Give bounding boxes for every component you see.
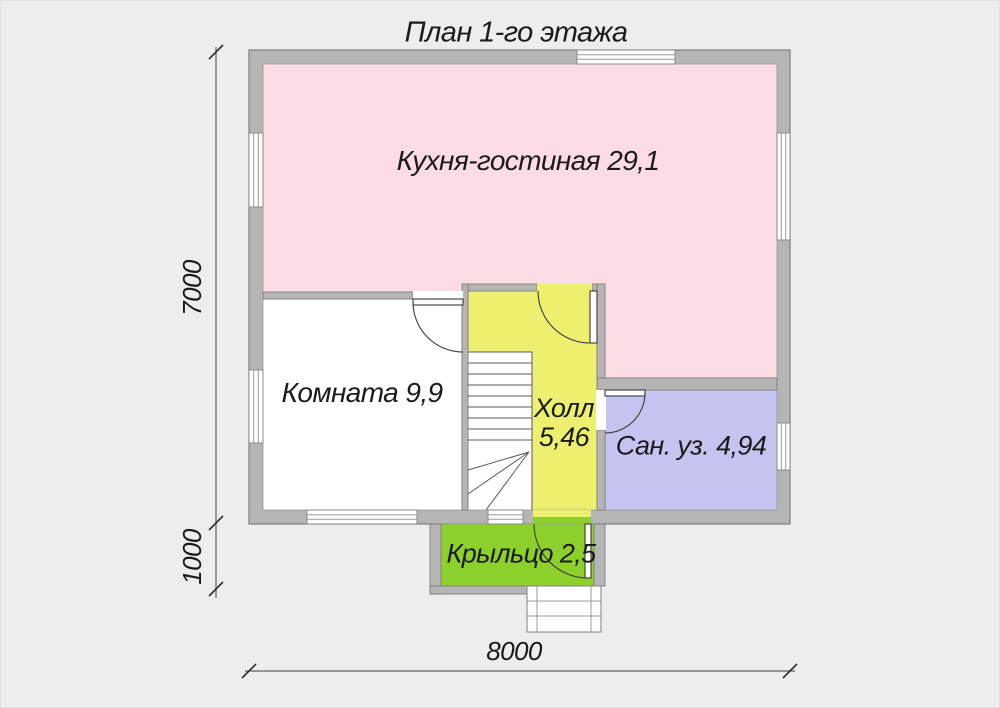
room-area-bathroom: 4,94 <box>716 430 766 460</box>
dimension-label-porch-depth: 1000 <box>178 529 206 584</box>
room-area-kitchen: 29,1 <box>607 145 659 176</box>
room-area-porch: 2,5 <box>560 538 596 568</box>
room-name-hall: Холл <box>534 394 594 423</box>
doorway-kitchen-hall <box>537 283 592 292</box>
room-area-bedroom: 9,9 <box>405 377 442 408</box>
window-right-kitchen <box>777 133 790 240</box>
room-label-hall: Холл 5,46 <box>534 394 594 452</box>
floor-plan-canvas: План 1-го этажа Кухня-гостиная 29,1 Комн… <box>0 0 1000 708</box>
wall-hall-kitchen-vertical <box>597 284 605 378</box>
room-label-bedroom: Комната 9,9 <box>282 378 443 408</box>
porch-wall-left <box>430 524 441 594</box>
door-leaf-room <box>413 299 463 305</box>
window-right-bathroom <box>777 423 790 470</box>
window-left-kitchen <box>249 133 263 207</box>
window-bottom-room <box>307 510 417 524</box>
floor-plan-drawing <box>0 0 1000 708</box>
staircase-area <box>468 352 532 510</box>
doorway-entry-upper <box>533 510 591 518</box>
entrance-steps <box>527 586 601 632</box>
room-name-bedroom: Комната <box>282 377 399 408</box>
wall-kitchen-bathroom <box>597 378 777 390</box>
room-label-porch: Крыльцо 2,5 <box>446 539 595 568</box>
dimension-label-width: 8000 <box>486 637 541 665</box>
wall-room-stairs <box>462 284 468 510</box>
room-name-kitchen: Кухня-гостиная <box>397 145 600 176</box>
plan-title: План 1-го этажа <box>405 17 628 48</box>
room-name-bathroom: Сан. уз. <box>616 430 709 460</box>
dimension-label-height: 7000 <box>178 260 206 315</box>
door-leaf-bathroom <box>605 390 645 396</box>
wall-hall-bathroom-vertical <box>597 430 605 510</box>
porch-wall-right <box>594 524 605 586</box>
doorway-entry-lower <box>533 517 591 524</box>
wall-kitchen-hall-left <box>468 284 537 291</box>
wall-kitchen-room-left <box>263 292 413 299</box>
window-left-room <box>249 370 263 443</box>
door-leaf-kitchen-hall <box>590 291 597 343</box>
porch-wall-bottom <box>430 586 527 594</box>
room-name-porch: Крыльцо <box>446 538 552 568</box>
room-label-bathroom: Сан. уз. 4,94 <box>616 431 767 460</box>
room-area-hall: 5,46 <box>534 423 594 452</box>
window-top-kitchen <box>577 50 675 64</box>
room-label-kitchen: Кухня-гостиная 29,1 <box>397 146 660 176</box>
window-bottom-stairs <box>488 510 523 524</box>
